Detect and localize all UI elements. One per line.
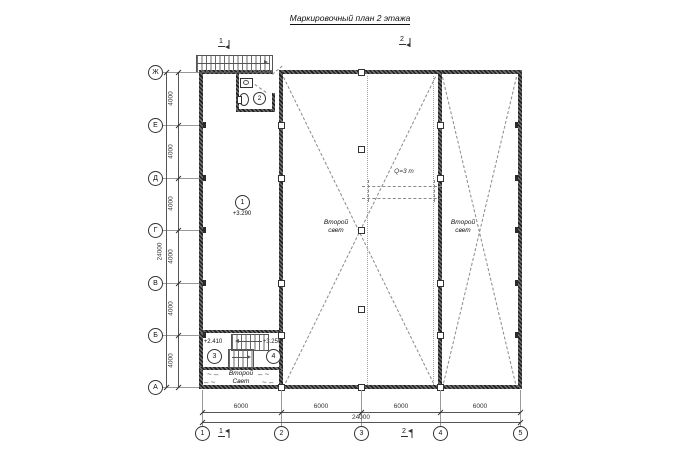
- dim-label-4000: 4000: [168, 186, 175, 222]
- axis-row-a: А: [148, 380, 163, 395]
- section-flag-icon: [225, 428, 235, 440]
- second-light-line1: Второй: [451, 219, 475, 226]
- section-flag-icon: [225, 38, 235, 50]
- axis-row-g: Г: [148, 223, 163, 238]
- crane-bridge-end-right: [434, 180, 435, 202]
- toilet-tank-icon: [237, 96, 242, 104]
- pilaster: [515, 332, 518, 338]
- stair-arrow-lower-head: [247, 355, 251, 359]
- elevation-room-3: +2.410: [198, 339, 228, 345]
- column-marker: [437, 280, 444, 287]
- dim-label-4000: 4000: [168, 238, 175, 274]
- break-mark: ~ –: [262, 380, 273, 386]
- dim-label-24000-bottom: 24000: [339, 414, 383, 421]
- axis-extension: [440, 390, 441, 426]
- crane-bridge-end-left: [368, 180, 369, 202]
- room-tag-2: 2: [253, 92, 266, 105]
- wall-wc-east: [272, 93, 275, 112]
- pilaster: [515, 280, 518, 286]
- section-number: 1: [218, 428, 225, 437]
- wall-wc-west: [236, 74, 239, 111]
- stair-arrow-upper: [238, 341, 262, 342]
- axis-col-3: 3: [354, 426, 369, 441]
- pilaster: [515, 122, 518, 128]
- column-marker: [278, 122, 285, 129]
- dim-label-4000: 4000: [168, 291, 175, 327]
- column-marker: [358, 306, 365, 313]
- pilaster: [515, 175, 518, 181]
- section-number: 2: [399, 36, 406, 45]
- pilaster: [203, 175, 206, 181]
- room-tag-1: 1: [235, 195, 250, 210]
- axis-row-d: Д: [148, 171, 163, 186]
- second-light-label-bottom: Второй Свет: [219, 370, 263, 386]
- column-marker: [358, 146, 365, 153]
- axis-col-2: 2: [274, 426, 289, 441]
- column-marker: [437, 122, 444, 129]
- column-marker: [278, 332, 285, 339]
- axis-extension: [281, 390, 282, 426]
- pilaster: [203, 227, 206, 233]
- section-marker-2-bottom: 2: [401, 428, 418, 440]
- second-light-line2: свет: [455, 227, 470, 234]
- wall-room1-south: [199, 330, 283, 333]
- staircase-arrow-line: [244, 63, 264, 64]
- room-tag-3: 3: [207, 349, 222, 364]
- second-light-label-hall: Второй свет: [314, 219, 358, 235]
- section-flag-icon: [408, 428, 418, 440]
- elevation-room-1: +3.290: [227, 211, 257, 217]
- dim-chain-left-total: [166, 72, 167, 387]
- wall-top-right-segment: [279, 70, 522, 74]
- staircase-internal-lower-flight: [228, 349, 254, 368]
- axis-leader: [162, 125, 199, 126]
- room-tag-4: 4: [266, 349, 281, 364]
- column-marker: [278, 280, 285, 287]
- axis-row-zh: Ж: [148, 65, 163, 80]
- column-marker: [437, 175, 444, 182]
- section-marker-1-top: 1: [218, 38, 235, 50]
- section-number: 1: [218, 38, 225, 47]
- dim-chain-bottom-total: [202, 422, 520, 423]
- axis-leader: [162, 283, 199, 284]
- axis-col-1: 1: [195, 426, 210, 441]
- dim-label-6000: 6000: [221, 403, 261, 410]
- crane-bridge-line-2: [362, 198, 442, 199]
- crane-rail-left: [367, 76, 368, 385]
- dim-label-4000: 4000: [168, 133, 175, 169]
- stair-arrow-lower: [232, 357, 248, 358]
- axis-leader: [162, 178, 199, 179]
- axis-row-b: Б: [148, 328, 163, 343]
- dim-label-6000: 6000: [381, 403, 421, 410]
- axis-col-5: 5: [513, 426, 528, 441]
- section-marker-1-bottom: 1: [218, 428, 235, 440]
- wall-wc-south: [236, 109, 275, 112]
- axis-leader: [162, 230, 199, 231]
- second-light-line2: свет: [328, 227, 343, 234]
- dim-label-6000: 6000: [301, 403, 341, 410]
- pilaster: [203, 122, 206, 128]
- break-mark: – ~: [204, 380, 215, 386]
- column-marker: [278, 175, 285, 182]
- column-marker: [358, 69, 365, 76]
- staircase-arrow-head: [264, 60, 268, 64]
- dim-label-4000: 4000: [168, 343, 175, 379]
- crane-bridge-line-1: [362, 186, 442, 187]
- axis-col-4: 4: [433, 426, 448, 441]
- axis-leader: [162, 335, 199, 336]
- pilaster: [515, 227, 518, 233]
- crane-capacity-label: Q=3 т: [384, 168, 424, 175]
- staircase-external-top: [196, 55, 273, 73]
- washbasin-bowl-icon: [243, 80, 249, 85]
- section-marker-2-top: 2: [399, 36, 416, 48]
- pilaster: [203, 332, 206, 338]
- second-light-bottom-line1: Второй: [229, 370, 253, 377]
- drawing-title: Маркировочный план 2 этажа: [0, 13, 700, 23]
- wall-right: [518, 70, 522, 389]
- axis-row-v: В: [148, 276, 163, 291]
- dim-label-4000: 4000: [168, 80, 175, 116]
- pilaster: [203, 280, 206, 286]
- section-number: 2: [401, 428, 408, 437]
- second-light-bottom-line2: Свет: [233, 378, 250, 385]
- column-marker: [358, 227, 365, 234]
- section-flag-icon: [406, 36, 416, 48]
- axis-row-e: Е: [148, 118, 163, 133]
- column-marker: [437, 332, 444, 339]
- crane-rail-right: [433, 76, 434, 385]
- stair-arrow-upper-head: [235, 339, 239, 343]
- dim-label-6000: 6000: [460, 403, 500, 410]
- second-light-line1: Второй: [324, 219, 348, 226]
- floor-plan-drawing: Маркировочный план 2 этажа 2 1 +3.290 +2…: [0, 0, 700, 474]
